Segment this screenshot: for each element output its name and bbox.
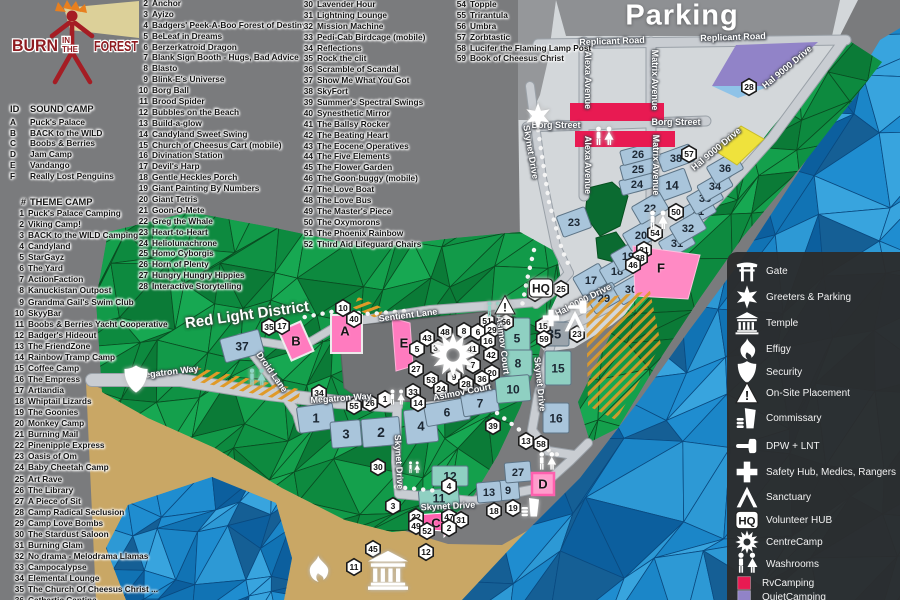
- svg-text:53: 53: [426, 375, 436, 385]
- hex-marker: 18: [487, 503, 501, 520]
- svg-text:13: 13: [521, 436, 531, 446]
- legend-item: Effigy: [735, 338, 791, 360]
- svg-text:15: 15: [538, 321, 548, 331]
- hex-marker: 11: [347, 559, 361, 576]
- svg-text:18: 18: [489, 506, 499, 516]
- svg-text:36: 36: [477, 374, 487, 384]
- svg-text:4: 4: [417, 419, 425, 434]
- svg-text:20: 20: [635, 230, 647, 242]
- svg-text:28: 28: [744, 82, 754, 92]
- legend-label: Safety Hub, Medics, Rangers: [766, 467, 896, 478]
- hex-marker: 28: [459, 376, 473, 393]
- rv-camping-area: [575, 131, 675, 147]
- svg-text:32: 32: [530, 288, 540, 298]
- svg-text:54: 54: [650, 228, 660, 238]
- svg-text:27: 27: [512, 467, 524, 479]
- legend-panel: GateGreeters & ParkingTempleEffigySecuri…: [727, 252, 900, 600]
- hex-marker: 36: [475, 371, 489, 388]
- svg-text:10: 10: [506, 382, 520, 396]
- hex-marker: 39: [486, 418, 500, 435]
- legend-item: HQVolunteer HUB: [735, 509, 832, 531]
- svg-text:9: 9: [505, 485, 511, 497]
- svg-text:48: 48: [440, 327, 450, 337]
- hex-marker: 12: [419, 544, 433, 561]
- camp-plot: 8: [504, 350, 532, 376]
- svg-text:38: 38: [670, 153, 682, 165]
- legend-label: Washrooms: [766, 559, 819, 570]
- svg-text:41: 41: [467, 344, 477, 354]
- svg-text:12: 12: [421, 547, 431, 557]
- svg-text:11: 11: [433, 491, 446, 505]
- hex-marker: 55: [347, 398, 361, 415]
- svg-text:58: 58: [536, 439, 546, 449]
- svg-text:8: 8: [515, 356, 522, 370]
- svg-text:59: 59: [539, 334, 549, 344]
- svg-text:50: 50: [671, 207, 681, 217]
- svg-text:45: 45: [368, 544, 378, 554]
- hex-marker: 7: [466, 357, 480, 374]
- legend-swatch: [735, 586, 755, 600]
- legend-label: CentreCamp: [766, 537, 823, 548]
- festival-map-page: 1234567891011121314151617181920212223242…: [0, 0, 900, 600]
- svg-text:6: 6: [444, 405, 451, 419]
- legend-item: Temple: [735, 312, 798, 334]
- svg-text:35: 35: [264, 322, 274, 332]
- svg-text:25: 25: [556, 284, 566, 294]
- svg-text:55: 55: [349, 401, 359, 411]
- svg-text:57: 57: [684, 149, 694, 159]
- legend-item: Safety Hub, Medics, Rangers: [735, 461, 896, 483]
- svg-text:46: 46: [628, 260, 638, 270]
- hex-marker: 41: [465, 341, 479, 358]
- hex-marker: 13: [519, 433, 533, 450]
- svg-text:10: 10: [338, 303, 348, 313]
- svg-text:26: 26: [365, 398, 375, 408]
- legend-label: DPW + LNT: [766, 441, 820, 452]
- hex-marker: 3: [386, 498, 400, 515]
- burst-icon: [735, 531, 759, 553]
- svg-text:5: 5: [514, 331, 521, 345]
- svg-text:36: 36: [719, 163, 731, 175]
- svg-text:1: 1: [312, 411, 319, 426]
- svg-text:56: 56: [501, 317, 511, 327]
- legend-label: Gate: [766, 266, 788, 277]
- camp-plot: 15: [545, 351, 571, 385]
- svg-text:24: 24: [631, 179, 644, 191]
- hex-marker: 58: [534, 436, 548, 453]
- legend-label: Volunteer HUB: [766, 515, 832, 526]
- shield-icon: [735, 361, 759, 383]
- hq-icon: HQ: [735, 509, 759, 531]
- legend-label: Effigy: [766, 344, 791, 355]
- svg-text:9: 9: [452, 372, 457, 382]
- hex-marker: 23: [570, 326, 584, 343]
- camp-plot: 13: [476, 481, 502, 503]
- legend-item: Gate: [735, 260, 788, 282]
- legend-label: Security: [766, 367, 802, 378]
- svg-text:23: 23: [572, 329, 582, 339]
- camp-plot: 2: [361, 416, 401, 447]
- onsite-icon: !: [735, 382, 759, 404]
- hex-marker: 59: [537, 331, 551, 348]
- svg-text:40: 40: [349, 314, 359, 324]
- legend-label: Commissary: [766, 413, 822, 424]
- hex-marker: 14: [411, 395, 425, 412]
- tent-icon: [735, 486, 759, 508]
- hex-marker: 16: [481, 333, 495, 350]
- svg-text:4: 4: [447, 481, 452, 491]
- camp-plot: 27: [504, 461, 532, 483]
- svg-text:37: 37: [235, 339, 249, 353]
- svg-text:8: 8: [462, 326, 467, 336]
- svg-text:14: 14: [665, 178, 679, 192]
- svg-text:!: !: [745, 388, 749, 403]
- svg-text:HQ: HQ: [738, 515, 755, 527]
- sound-camp-d-area: [532, 473, 554, 495]
- svg-text:2: 2: [377, 424, 385, 440]
- hex-marker: 2: [442, 520, 456, 537]
- svg-text:26: 26: [632, 149, 644, 161]
- svg-text:52: 52: [422, 526, 432, 536]
- legend-label: Temple: [766, 318, 798, 329]
- svg-text:16: 16: [483, 336, 493, 346]
- hex-marker: 54: [648, 225, 662, 242]
- svg-text:37: 37: [433, 343, 443, 353]
- hex-marker: 52: [420, 523, 434, 540]
- hex-marker: 17: [275, 318, 289, 335]
- svg-text:3: 3: [342, 427, 349, 442]
- parking-area: [556, 0, 840, 36]
- hex-marker: 26: [363, 395, 377, 412]
- camp-plot: 3: [330, 420, 362, 449]
- temple-icon: [735, 312, 759, 334]
- hex-marker: 40: [347, 311, 361, 328]
- svg-text:25: 25: [632, 164, 644, 176]
- cup-icon: [735, 407, 759, 429]
- legend-item: QuietCamping: [735, 586, 826, 600]
- hex-marker: 5: [410, 341, 424, 358]
- svg-text:24: 24: [436, 384, 446, 394]
- svg-text:1: 1: [383, 394, 388, 404]
- rv-camping-area: [570, 103, 664, 121]
- legend-item: DPW + LNT: [735, 435, 820, 457]
- svg-text:3: 3: [391, 501, 396, 511]
- cross-icon: [735, 461, 759, 483]
- camp-plot: 10: [495, 375, 531, 404]
- svg-text:15: 15: [551, 361, 565, 375]
- svg-text:34: 34: [314, 388, 324, 398]
- hex-marker: 8: [457, 323, 471, 340]
- svg-text:23: 23: [568, 217, 580, 229]
- hex-marker: 50: [669, 204, 683, 221]
- star-icon: [735, 286, 759, 308]
- svg-text:27: 27: [411, 364, 421, 374]
- svg-text:28: 28: [461, 379, 471, 389]
- hex-marker: 25: [554, 281, 568, 298]
- hammer-icon: [735, 435, 759, 457]
- legend-label: QuietCamping: [762, 592, 826, 600]
- hex-marker: 32: [528, 285, 542, 302]
- svg-text:32: 32: [682, 223, 694, 235]
- hex-marker: 57: [682, 146, 696, 163]
- legend-item: CentreCamp: [735, 531, 823, 553]
- hex-marker: 45: [366, 541, 380, 558]
- hex-marker: 27: [409, 361, 423, 378]
- svg-text:42: 42: [486, 350, 496, 360]
- legend-item: Greeters & Parking: [735, 286, 851, 308]
- hex-marker: 48: [438, 324, 452, 341]
- svg-text:5: 5: [415, 344, 420, 354]
- legend-label: Sanctuary: [766, 492, 811, 503]
- hex-marker: 19: [506, 500, 520, 517]
- flame-icon: [735, 338, 759, 360]
- legend-item: Sanctuary: [735, 486, 811, 508]
- hex-marker: 56: [499, 314, 513, 331]
- camp-plot: 16: [543, 403, 569, 433]
- legend-item: Commissary: [735, 407, 822, 429]
- svg-text:17: 17: [585, 275, 597, 287]
- svg-text:14: 14: [413, 398, 423, 408]
- svg-text:6: 6: [476, 327, 481, 337]
- hex-marker: 37: [431, 340, 445, 357]
- svg-text:17: 17: [277, 321, 287, 331]
- svg-text:2: 2: [447, 523, 452, 533]
- hex-marker: 28: [742, 79, 756, 96]
- legend-item: !On-Site Placement: [735, 382, 850, 404]
- hex-marker: 34: [312, 385, 326, 402]
- svg-text:30: 30: [373, 462, 383, 472]
- svg-text:13: 13: [483, 487, 495, 499]
- legend-label: Greeters & Parking: [766, 292, 851, 303]
- svg-text:19: 19: [508, 503, 518, 513]
- hex-marker: 1: [378, 391, 392, 408]
- svg-text:7: 7: [471, 360, 476, 370]
- hex-marker: 24: [434, 381, 448, 398]
- legend-item: Security: [735, 361, 802, 383]
- svg-text:11: 11: [350, 562, 359, 572]
- svg-text:16: 16: [549, 411, 563, 425]
- legend-label: On-Site Placement: [766, 388, 850, 399]
- svg-text:22: 22: [644, 203, 656, 215]
- hex-marker: 4: [442, 478, 456, 495]
- svg-text:7: 7: [477, 396, 484, 410]
- hex-marker: 30: [371, 459, 385, 476]
- svg-text:31: 31: [456, 515, 466, 525]
- svg-text:43: 43: [422, 333, 432, 343]
- svg-text:39: 39: [488, 421, 498, 431]
- gate-icon: [735, 260, 759, 282]
- hex-marker: 46: [626, 257, 640, 274]
- hex-marker: 42: [484, 347, 498, 364]
- camp-plot: 1: [296, 403, 335, 434]
